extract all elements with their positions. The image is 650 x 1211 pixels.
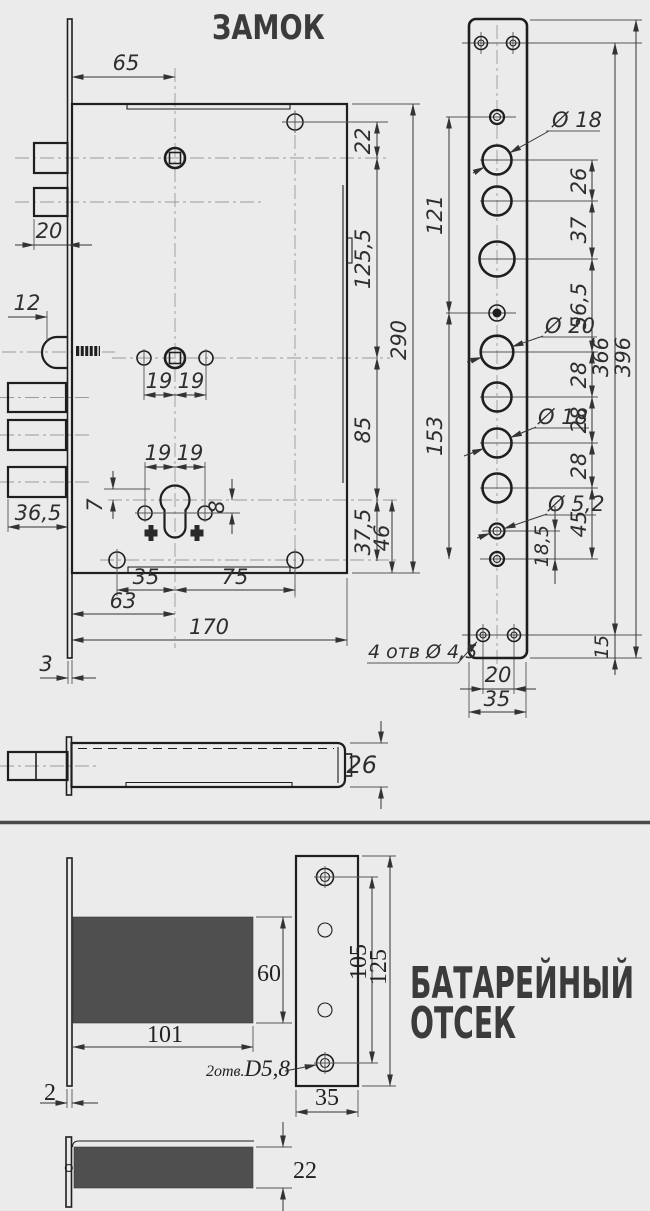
dim-28: 28 [567,362,591,389]
battery-bracket-dims [285,856,396,1117]
dim-15: 15 [591,635,613,659]
label-2-holes-note: 2отв.D5,8 [206,1056,290,1081]
battery-bracket-holes [314,866,336,1074]
label-dia-20: Ø 20 [544,314,595,338]
dim-20: 20 [36,219,63,243]
label-dia-18: Ø 18 [537,405,588,429]
dim-60: 60 [257,961,281,987]
dim-8: 8 [205,500,229,513]
label-4-holes-note: 4 отв Ø 4,5 [368,641,477,663]
faceplate-holes [475,37,521,642]
dim-12: 12 [14,291,41,315]
lock-dimension-lines [8,77,413,678]
dim-18-5: 18,5 [531,525,553,567]
lock-bottom-view: 26 [0,721,388,809]
label-dia-18: Ø 18 [551,108,602,132]
dim-75: 75 [222,565,249,589]
dim-37: 37 [567,216,591,243]
battery-top-view [65,1122,292,1211]
dim-85: 85 [351,417,375,444]
dim-7: 7 [83,498,107,512]
dim-3: 3 [39,652,52,676]
dim-19: 19 [177,441,204,465]
lock-extension-lines [8,104,420,684]
battery-compartment-view: 60 101 2 105 125 35 2отв.D5,8 22 [40,856,396,1211]
page-title-lock: ЗАМОК [212,8,325,48]
dim-63: 63 [110,589,137,613]
dim-35: 35 [315,1085,339,1111]
page-title-battery: БАТАРЕЙНЫЙ ОТСЕК [410,964,634,1044]
battery-box-side [73,917,253,1023]
dim-65: 65 [113,51,140,75]
battery-plate-edge [67,858,72,1086]
battery-title-line2: ОТСЕК [410,1004,634,1044]
dim-19: 19 [178,369,205,393]
lock-body-outline [68,19,353,658]
technical-drawing-page: 65 22 20 12 125,5 85 290 19 19 19 19 7 8… [0,0,650,1211]
dim-26: 26 [346,751,377,779]
dim-36-5: 36,5 [15,501,62,525]
dim-396: 396 [611,337,635,377]
dim-22: 22 [293,1158,317,1184]
dim-20: 20 [485,663,512,687]
dim-125: 125 [366,949,392,985]
dim-153: 153 [423,416,447,456]
label-dia-5-2: Ø 5,2 [547,492,605,516]
dim-290: 290 [387,320,411,360]
dim-101: 101 [147,1022,183,1048]
dim-2: 2 [44,1080,56,1106]
dim-22: 22 [351,128,375,155]
dim-26: 26 [567,168,591,195]
lock-case-outline [72,743,346,787]
lock-front-view: 65 22 20 12 125,5 85 290 19 19 19 19 7 8… [0,19,420,684]
dim-170: 170 [189,615,229,639]
dim-125-5: 125,5 [351,229,375,289]
dim-19: 19 [145,441,172,465]
dim-366: 366 [589,337,613,377]
dim-28: 28 [567,453,591,480]
faceplate-view: 121 153 366 396 26 37 56,5 28 28 28 45 1… [367,19,642,718]
deadbolts [8,383,66,497]
dim-35: 35 [484,687,511,711]
cylinder-screws [145,525,204,541]
dim-121: 121 [423,195,447,235]
lock-centerlines [0,68,400,648]
dim-46: 46 [370,525,394,552]
dim-19: 19 [146,369,173,393]
dim-35: 35 [133,565,160,589]
